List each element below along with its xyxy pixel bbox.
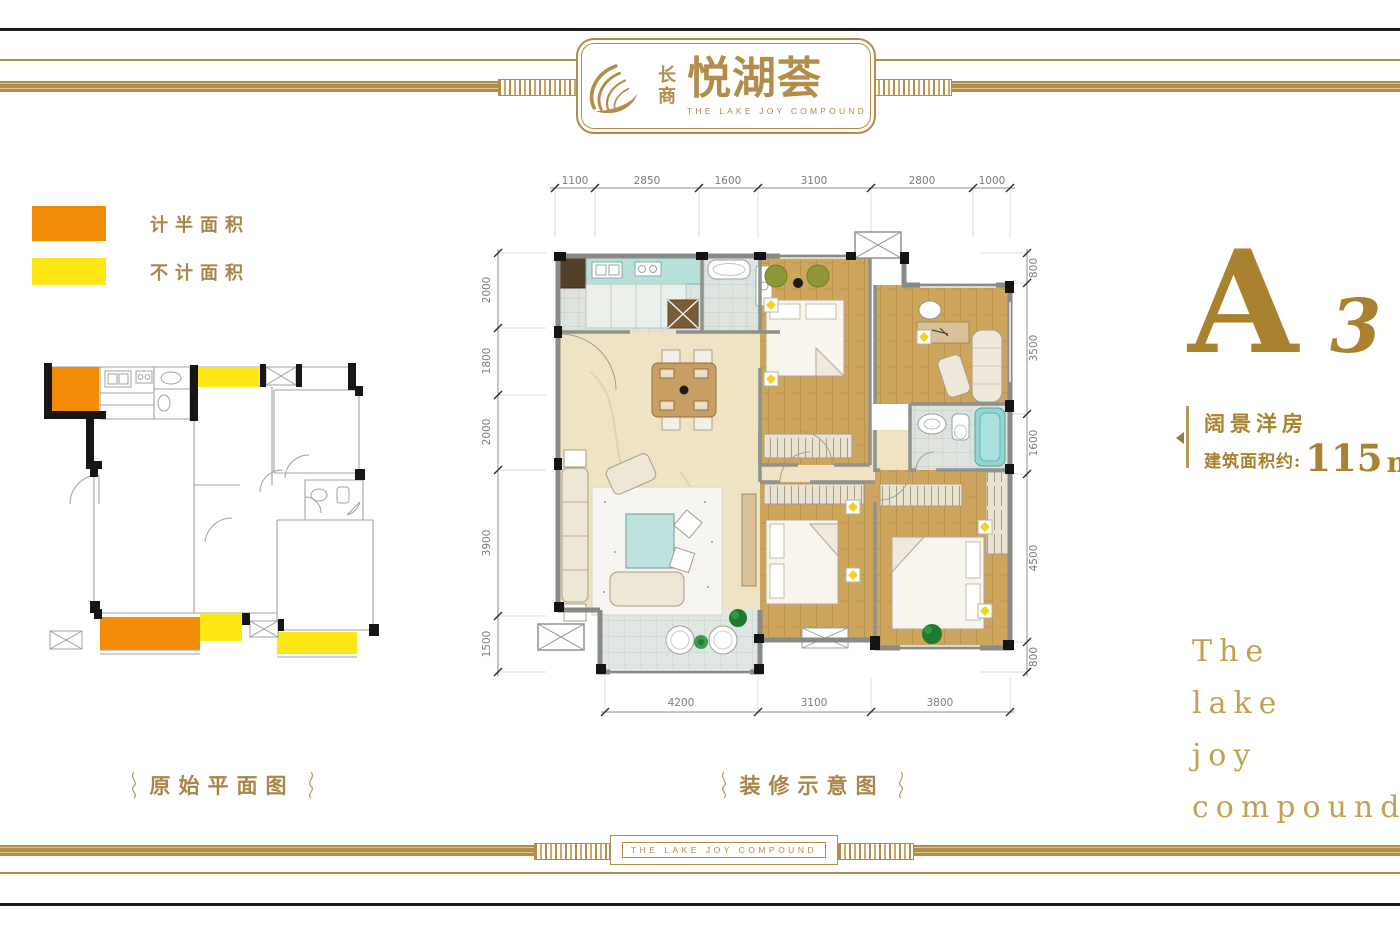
svg-text:800: 800 <box>1028 647 1040 667</box>
half-area-top-left <box>51 367 99 411</box>
legend-row-half-area: 计半面积 <box>32 206 250 241</box>
svg-text:3100: 3100 <box>801 697 828 709</box>
excluded-area-top <box>198 367 262 387</box>
flourish-icon <box>128 770 140 800</box>
flourish-icon <box>305 770 317 800</box>
svg-text:2000: 2000 <box>481 419 493 446</box>
brand-name-vertical: 长商 <box>652 65 678 107</box>
legend-row-excluded-area: 不计面积 <box>32 258 250 285</box>
bottom-gold-rule <box>0 872 1400 874</box>
flourish-icon <box>718 770 730 800</box>
bottom-band-ornament-left <box>534 843 610 860</box>
original-floor-plan <box>42 345 392 675</box>
svg-text:800: 800 <box>1028 258 1040 278</box>
area-unit: m <box>1387 450 1400 475</box>
tagline-line: compound <box>1192 782 1400 834</box>
svg-text:1000: 1000 <box>979 175 1006 187</box>
unit-letter: A <box>1188 232 1298 374</box>
decorated-floor-plan: 1100 2850 1600 3100 2800 1000 2000 1800 … <box>480 172 1045 747</box>
excluded-area-bottom-right <box>277 632 357 653</box>
vertical-divider <box>1186 406 1189 468</box>
svg-text:4200: 4200 <box>668 697 695 709</box>
svg-text:2850: 2850 <box>634 175 661 187</box>
top-black-rule <box>0 28 1400 31</box>
unit-number: 3 <box>1330 290 1382 364</box>
svg-text:1800: 1800 <box>481 348 493 375</box>
svg-text:1500: 1500 <box>481 631 493 658</box>
legend-label-excluded-area: 不计面积 <box>150 259 250 285</box>
svg-text:3800: 3800 <box>927 697 954 709</box>
legend: 计半面积 不计面积 <box>32 206 250 285</box>
top-band-ornament-right <box>872 79 952 96</box>
page: 长商 悦湖荟 THE LAKE JOY COMPOUND 计半面积 不计面积 <box>0 0 1400 933</box>
svg-text:3900: 3900 <box>481 530 493 557</box>
unit-type-label: 阔景洋房 <box>1204 408 1308 438</box>
dim-chain-bottom: 4200 3100 3800 <box>601 677 1014 716</box>
excluded-area-bottom-center <box>200 613 242 641</box>
brand-name-en: THE LAKE JOY COMPOUND <box>687 106 867 116</box>
svg-text:2800: 2800 <box>909 175 936 187</box>
svg-text:2000: 2000 <box>481 277 493 304</box>
svg-text:1100: 1100 <box>562 175 589 187</box>
svg-text:3500: 3500 <box>1028 335 1040 362</box>
top-band-ornament-left <box>498 79 578 96</box>
area-label: 建筑面积约: <box>1204 447 1301 475</box>
legend-swatch-excluded-area <box>32 258 106 285</box>
legend-swatch-half-area <box>32 206 106 241</box>
area-value: 115 <box>1305 442 1382 475</box>
svg-text:3100: 3100 <box>801 175 828 187</box>
brand-name-main: 悦湖荟 <box>687 57 867 101</box>
tagline-line: lake <box>1192 678 1400 730</box>
bottom-band-ornament-right <box>838 843 914 860</box>
dim-chain-left: 2000 1800 2000 3900 1500 <box>481 249 546 676</box>
left-arrow-marker <box>1176 432 1184 444</box>
svg-text:1600: 1600 <box>715 175 742 187</box>
svg-text:4500: 4500 <box>1028 545 1040 572</box>
tagline-line: joy <box>1192 730 1400 782</box>
legend-label-half-area: 计半面积 <box>150 211 250 237</box>
decorated-plan-caption: 装修示意图 <box>702 770 922 800</box>
dim-chain-top: 1100 2850 1600 3100 2800 1000 <box>550 175 1015 238</box>
tagline-line: The <box>1192 626 1400 678</box>
original-plan-caption: 原始平面图 <box>112 770 332 800</box>
svg-text:1600: 1600 <box>1028 430 1040 457</box>
bottom-black-rule <box>0 903 1400 906</box>
footer-plaque: THE LAKE JOY COMPOUND <box>610 835 838 865</box>
swan-icon <box>585 55 643 117</box>
half-area-bottom <box>100 617 200 650</box>
brand-logo: 长商 悦湖荟 THE LAKE JOY COMPOUND <box>576 38 876 134</box>
flourish-icon <box>895 770 907 800</box>
footer-plaque-text: THE LAKE JOY COMPOUND <box>622 842 826 858</box>
brand-name-block: 悦湖荟 THE LAKE JOY COMPOUND <box>687 57 867 116</box>
unit-area: 建筑面积约: 115 m 2 <box>1204 442 1400 475</box>
tagline: The lake joy compound <box>1192 626 1400 834</box>
